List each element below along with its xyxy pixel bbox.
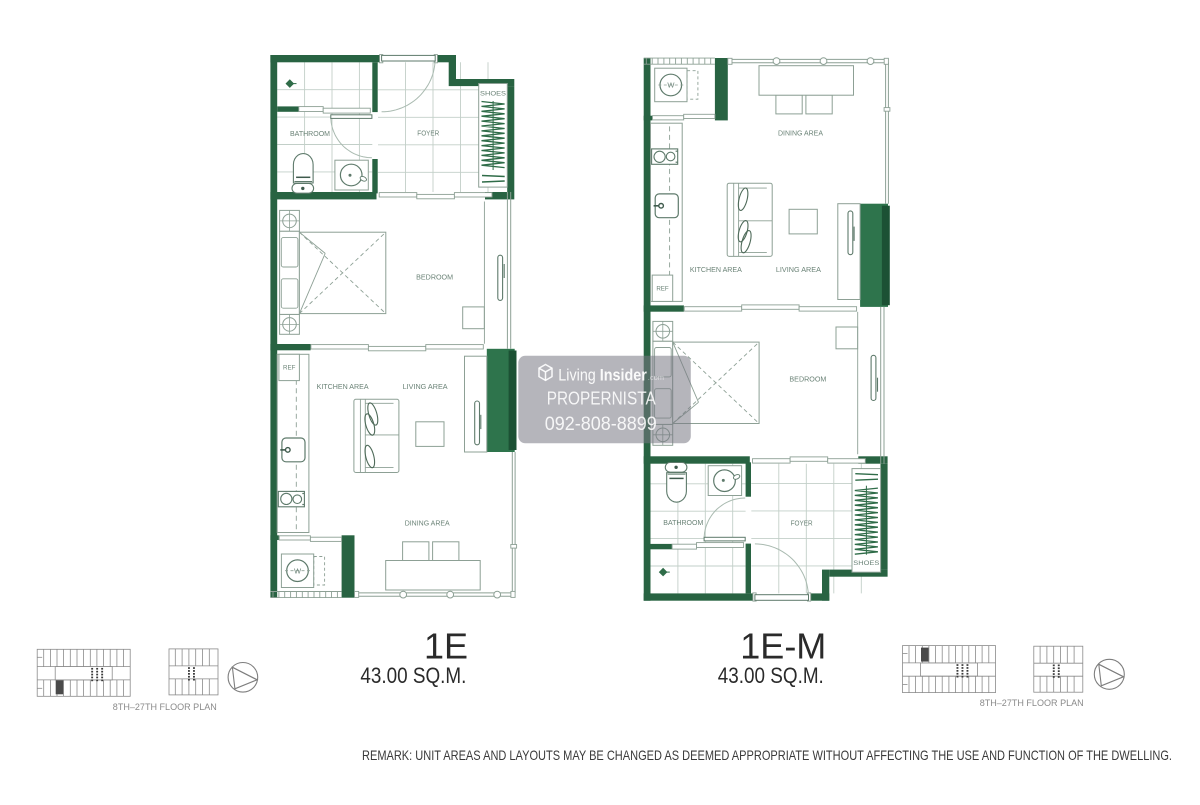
svg-text:BEDROOM: BEDROOM <box>416 273 453 282</box>
svg-text:FOYER: FOYER <box>791 518 813 527</box>
svg-text:43.00 SQ.M.: 43.00 SQ.M. <box>718 663 824 688</box>
svg-text:BATHROOM: BATHROOM <box>663 518 703 527</box>
svg-text:LIVING AREA: LIVING AREA <box>403 382 448 391</box>
svg-text:BEDROOM: BEDROOM <box>789 374 826 383</box>
svg-text:DINING AREA: DINING AREA <box>778 128 823 137</box>
svg-text:43.00 SQ.M.: 43.00 SQ.M. <box>360 663 466 688</box>
svg-text:PROPERNISTA: PROPERNISTA <box>547 387 657 408</box>
svg-text:8TH–27TH FLOOR PLAN: 8TH–27TH FLOOR PLAN <box>980 698 1084 708</box>
svg-text:1E-M: 1E-M <box>740 625 826 666</box>
svg-text:REF: REF <box>283 365 296 372</box>
svg-text:REF: REF <box>656 285 669 292</box>
svg-text:REMARK: UNIT AREAS AND LAYOUTS: REMARK: UNIT AREAS AND LAYOUTS MAY BE CH… <box>362 748 1172 763</box>
svg-text:.com: .com <box>648 373 664 382</box>
svg-text:W: W <box>294 567 302 576</box>
svg-text:092-808-8899: 092-808-8899 <box>545 413 657 435</box>
svg-text:SHOES: SHOES <box>853 560 880 567</box>
svg-text:KITCHEN AREA: KITCHEN AREA <box>690 265 742 274</box>
svg-text:LIVING AREA: LIVING AREA <box>776 265 821 274</box>
svg-text:KITCHEN AREA: KITCHEN AREA <box>317 382 369 391</box>
svg-text:Living Insider: Living Insider <box>558 367 647 385</box>
svg-text:W: W <box>667 81 675 90</box>
svg-text:BATHROOM: BATHROOM <box>290 129 330 138</box>
svg-text:1E: 1E <box>424 625 468 666</box>
svg-text:8TH–27TH FLOOR PLAN: 8TH–27TH FLOOR PLAN <box>113 702 217 712</box>
svg-text:FOYER: FOYER <box>417 129 439 138</box>
svg-text:DINING AREA: DINING AREA <box>405 519 450 528</box>
svg-text:SHOES: SHOES <box>480 90 507 97</box>
